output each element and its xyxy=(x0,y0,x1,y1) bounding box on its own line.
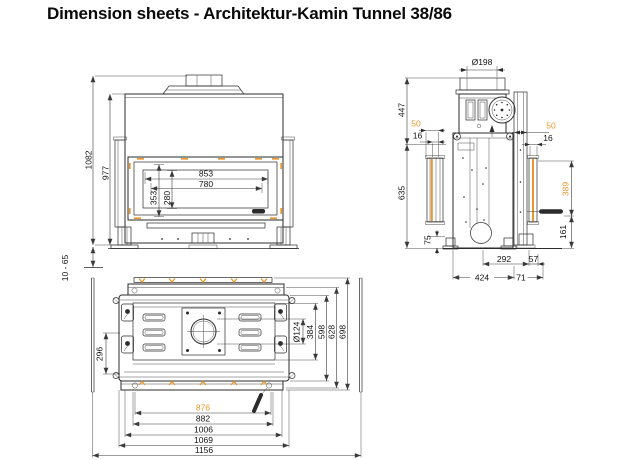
glass-gasket-bottom xyxy=(139,382,267,386)
plan-view: 296 Ø124 384 598 628 xyxy=(92,278,363,458)
front-view-outline xyxy=(108,75,299,249)
dim-rear-inset: 16 xyxy=(543,133,553,143)
front-view: 1082 977 10 - 65 853 780 353 xyxy=(60,75,299,281)
dim-plan-flue-diameter: Ø124 xyxy=(292,321,302,342)
side-view: Ø198 447 635 50 16 xyxy=(397,57,575,283)
dim-glass-width: 876 xyxy=(196,403,210,413)
dim-latch-spacing: 296 xyxy=(95,347,105,361)
dim-base-height: 161 xyxy=(558,225,568,239)
dim-plan-body-width: 1006 xyxy=(194,425,213,435)
door-handle xyxy=(252,209,265,214)
dim-handle-height: 389 xyxy=(561,182,571,196)
dim-front-inset: 16 xyxy=(413,131,423,141)
dim-overall-height: 1082 xyxy=(84,150,94,169)
dim-body-height: 977 xyxy=(101,166,111,180)
dim-glass-width: 853 xyxy=(199,169,213,179)
front-view-dimensions: 1082 977 10 - 65 853 780 353 xyxy=(60,76,268,281)
dim-rear-overhang: 71 xyxy=(516,273,526,283)
dim-plan-body-depth: 598 xyxy=(317,325,327,339)
dim-opening-height: 280 xyxy=(162,191,172,205)
side-view-outline xyxy=(426,78,564,249)
dim-glass-height: 353 xyxy=(149,191,159,205)
dimension-sheet: Dimension sheets - Architektur-Kamin Tun… xyxy=(0,0,624,460)
dim-rear-offset: 57 xyxy=(529,254,539,264)
dim-door-width: 882 xyxy=(196,414,210,424)
corner-screws xyxy=(113,298,295,379)
dim-flue-center-depth: 292 xyxy=(497,254,511,264)
dim-opening-width: 780 xyxy=(199,179,213,189)
dim-overall-depth: 698 xyxy=(338,325,348,339)
dim-inner-depth: 384 xyxy=(305,325,315,339)
glass-gasket-top xyxy=(139,279,267,283)
dim-front-gap: 50 xyxy=(411,119,421,129)
dim-body-depth: 424 xyxy=(475,273,489,283)
plan-handle xyxy=(254,388,267,411)
dim-flue-diameter: Ø198 xyxy=(472,57,493,67)
plan-view-outline xyxy=(92,278,363,412)
dim-lower-height: 635 xyxy=(397,186,407,200)
dim-foot-adjustment: 10 - 65 xyxy=(60,254,70,281)
dim-overall-width: 1156 xyxy=(195,445,214,455)
fan-motor xyxy=(489,97,515,123)
technical-drawing: 1082 977 10 - 65 853 780 353 xyxy=(0,0,624,460)
dim-frame-width: 1069 xyxy=(194,435,213,445)
dim-frame-depth: 628 xyxy=(327,325,337,339)
dim-rear-gap: 50 xyxy=(546,121,556,131)
flue-plate xyxy=(182,308,225,355)
dim-foot-height: 75 xyxy=(423,235,433,245)
dim-upper-height: 447 xyxy=(397,103,407,117)
